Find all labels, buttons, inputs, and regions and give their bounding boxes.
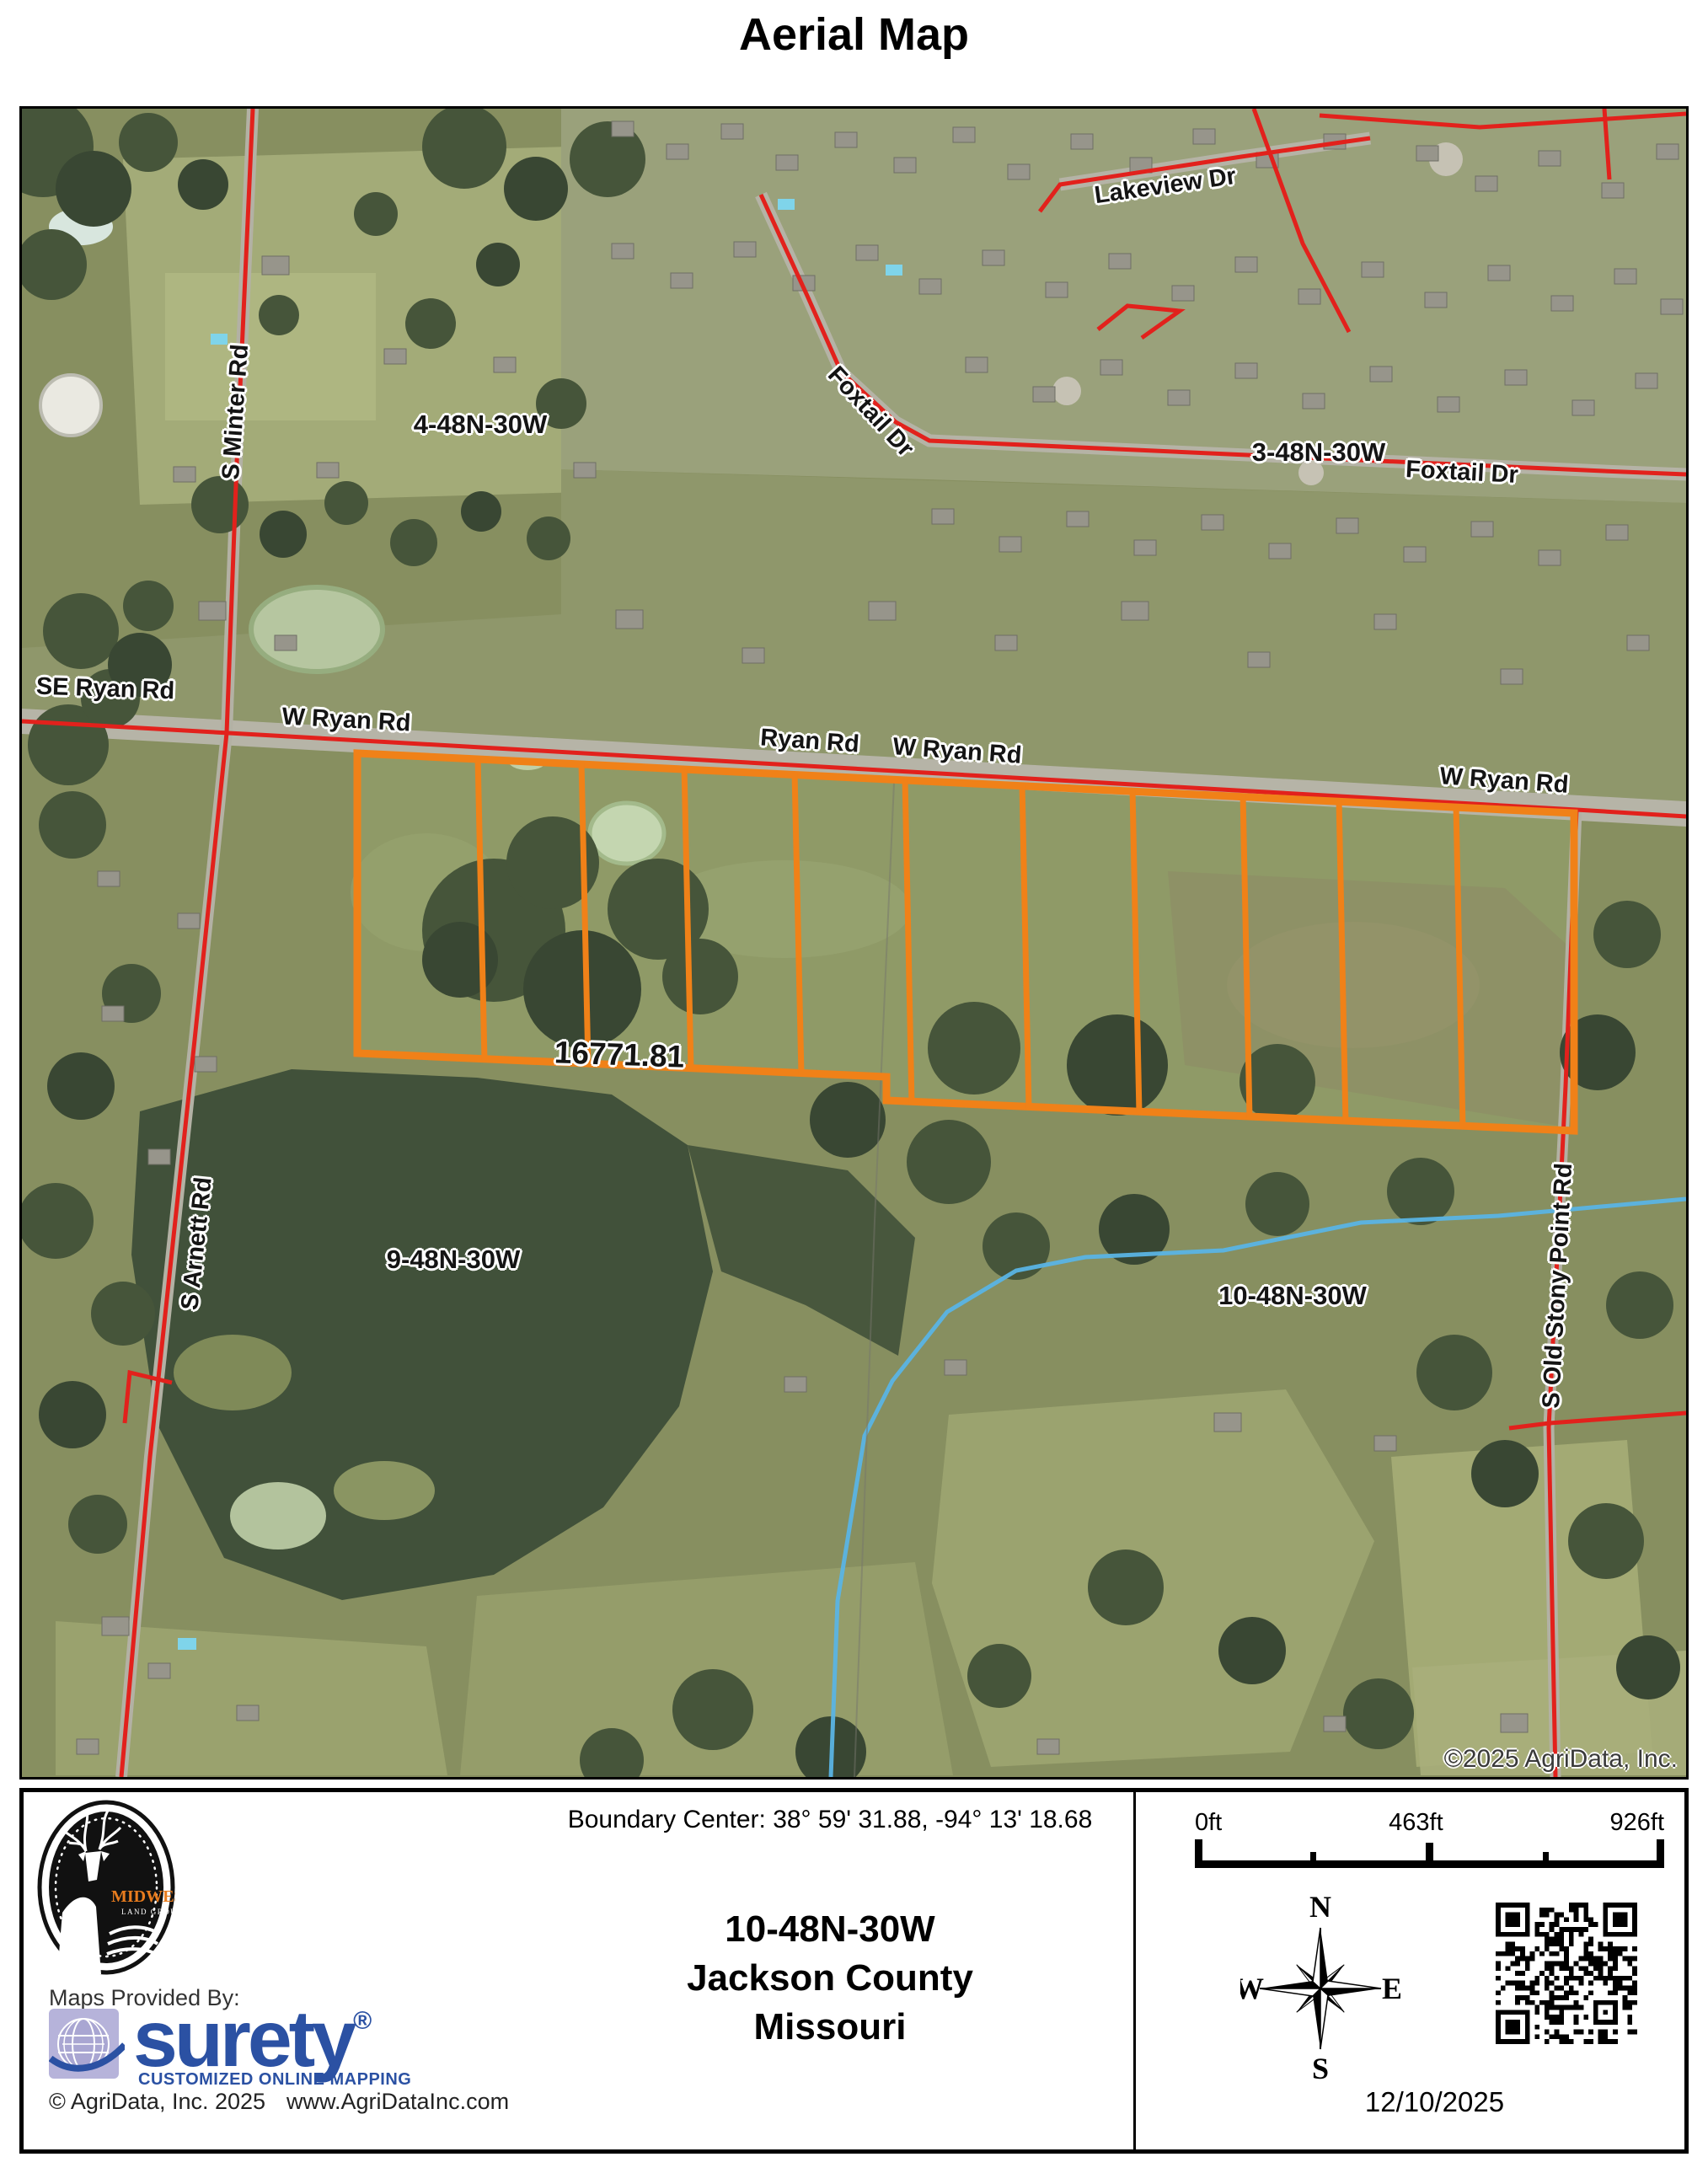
map-date: 12/10/2025	[1348, 2086, 1521, 2118]
scale-start-label: 0ft	[1195, 1809, 1222, 1837]
surety-globe-icon	[49, 2004, 125, 2082]
section-township-range: 10-48N-30W	[535, 1905, 1125, 1954]
footer-panel: MIDWEST LAND GROUP Maps Provided By: sur…	[19, 1788, 1689, 2154]
location-block: 10-48N-30W Jackson County Missouri	[535, 1905, 1125, 2052]
section-label-9-48n-30w: 9-48N-30W	[387, 1244, 521, 1275]
qr-code	[1496, 1903, 1637, 2044]
state-name: Missouri	[535, 2003, 1125, 2052]
compass-north-label: N	[1309, 1892, 1331, 1924]
map-copyright: ©2025 AgriData, Inc.	[1444, 1745, 1678, 1774]
compass-south-label: S	[1312, 2052, 1329, 2085]
registered-mark: ®	[353, 2007, 372, 2035]
compass-rose-icon: N E S W	[1240, 1892, 1400, 2085]
scale-end-label: 926ft	[1610, 1809, 1665, 1837]
road-label-foxtail-east: Foxtail Dr	[1405, 456, 1518, 490]
land-group-logo-text: LAND GROUP	[121, 1908, 175, 1916]
page-title: Aerial Map	[0, 8, 1708, 61]
compass-west-label: W	[1240, 1972, 1264, 2005]
scale-bar-labels: 0ft 463ft 926ft	[1195, 1809, 1664, 1837]
section-label-10-48n-30w: 10-48N-30W	[1218, 1281, 1367, 1311]
compass-east-label: E	[1382, 1972, 1400, 2005]
aerial-imagery-icon	[22, 109, 1686, 1777]
midwest-logo-text: MIDWEST	[111, 1887, 175, 1906]
midwest-land-group-logo: MIDWEST LAND GROUP	[37, 1799, 175, 1976]
aerial-map: Lakeview Dr Foxtail Dr Foxtail Dr 4-48N-…	[19, 106, 1689, 1780]
boundary-center-text: Boundary Center: 38° 59' 31.88, -94° 13'…	[529, 1806, 1131, 1834]
agridata-copyright: © AgriData, Inc. 2025	[49, 2089, 265, 2115]
agridata-website: www.AgriDataInc.com	[286, 2089, 509, 2115]
county-name: Jackson County	[535, 1954, 1125, 2003]
surety-logo: surety® CUSTOMIZED ONLINE MAPPING	[49, 2004, 411, 2090]
road-label-se-ryan: SE Ryan Rd	[35, 673, 174, 706]
scale-bar	[1195, 1839, 1664, 1868]
surety-tagline: CUSTOMIZED ONLINE MAPPING	[138, 2070, 411, 2090]
section-label-4-48n-30w: 4-48N-30W	[414, 409, 548, 440]
parcel-acreage-label: 16771.81	[554, 1035, 685, 1074]
scale-mid-label: 463ft	[1389, 1809, 1443, 1837]
section-label-3-48n-30w: 3-48N-30W	[1252, 437, 1386, 468]
footer-divider	[1133, 1792, 1136, 2149]
